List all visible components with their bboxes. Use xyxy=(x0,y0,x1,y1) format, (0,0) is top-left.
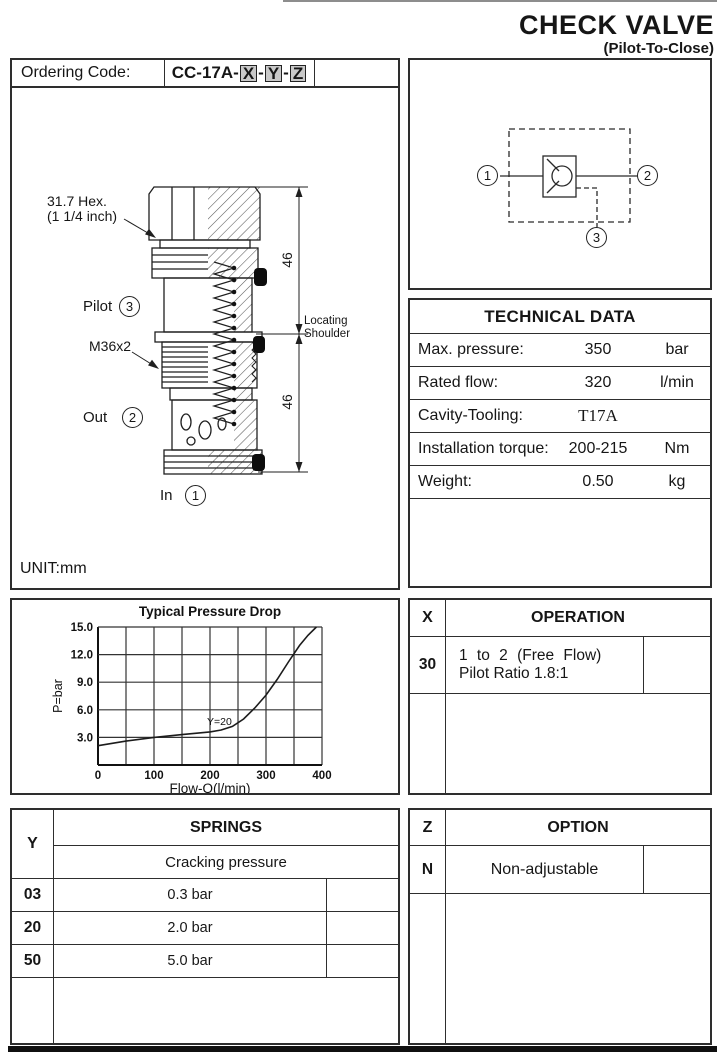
page-subtitle: (Pilot-To-Close) xyxy=(603,40,714,57)
operation-filler-code-col xyxy=(410,694,446,793)
pilot-label: Pilot xyxy=(83,298,112,315)
ordering-code-value: CC-17A-X-Y-Z xyxy=(165,60,315,86)
option-row-empty xyxy=(644,846,710,894)
technical-data-title: TECHNICAL DATA xyxy=(410,300,710,334)
in-label: In xyxy=(160,487,173,504)
springs-table: Y SPRINGS Cracking pressure 03 0.3 bar 2… xyxy=(10,808,400,1045)
spring-row-code: 20 xyxy=(12,912,54,945)
option-code-header: Z xyxy=(410,810,446,846)
operation-row-code: 30 xyxy=(410,637,446,694)
springs-filler xyxy=(54,978,398,1043)
datasheet-page: CHECK VALVE (Pilot-To-Close) Ordering Co… xyxy=(0,0,717,1054)
spring-row-value: 2.0 bar xyxy=(54,912,326,945)
option-row-value: Non-adjustable xyxy=(446,846,644,894)
section-hatching xyxy=(208,187,262,474)
option-title: OPTION xyxy=(446,810,710,846)
operation-title: OPERATION xyxy=(446,600,710,637)
y-tick-label: 3.0 xyxy=(77,732,93,744)
ordering-code-prefix: CC-17A- xyxy=(172,63,239,83)
tech-label: Rated flow: xyxy=(410,374,552,392)
tech-value: 320 xyxy=(552,374,644,392)
tech-value: T17A xyxy=(552,406,644,426)
unit-label: UNIT:mm xyxy=(20,560,87,578)
springs-code-header: Y xyxy=(12,810,54,879)
tech-unit: kg xyxy=(644,473,710,491)
ordering-empty-cell xyxy=(315,60,398,86)
ordering-code-label: Ordering Code: xyxy=(12,60,165,86)
springs-subtitle: Cracking pressure xyxy=(54,846,398,879)
tech-label: Installation torque: xyxy=(410,440,552,458)
pressure-drop-chart-panel: 3.06.09.012.015.00100200300400Typical Pr… xyxy=(10,598,400,795)
table-row: Installation torque: 200-215 Nm xyxy=(410,433,710,466)
y-tick-label: 9.0 xyxy=(77,677,93,689)
ordering-code-table: Ordering Code: CC-17A-X-Y-Z xyxy=(10,58,400,88)
x-tick-label: 0 xyxy=(95,770,101,782)
option-table: Z OPTION N Non-adjustable xyxy=(408,808,712,1045)
tech-unit: Nm xyxy=(644,440,710,458)
spring-row-empty xyxy=(326,879,398,912)
pressure-drop-chart: 3.06.09.012.015.00100200300400Typical Pr… xyxy=(12,600,398,793)
ordering-code-x: X xyxy=(240,65,257,82)
table-row: Cavity-Tooling: T17A xyxy=(410,400,710,433)
ordering-sep2: - xyxy=(283,63,289,83)
x-tick-label: 300 xyxy=(256,770,275,782)
curve-annotation: Y=20 xyxy=(207,716,232,728)
thread-label: M36x2 xyxy=(89,338,131,354)
locating-shoulder-label-line2: Shoulder xyxy=(304,328,350,340)
ordering-code-z: Z xyxy=(290,65,306,82)
dimension-46-bottom: 46 xyxy=(279,389,295,415)
x-tick-label: 400 xyxy=(312,770,331,782)
in-port-number: 1 xyxy=(185,485,206,506)
tech-label: Cavity-Tooling: xyxy=(410,407,552,425)
x-tick-label: 100 xyxy=(144,770,163,782)
tech-unit: bar xyxy=(644,341,710,359)
tech-value: 200-215 xyxy=(552,440,644,458)
chart-title: Typical Pressure Drop xyxy=(139,604,281,619)
spring-row-code: 50 xyxy=(12,945,54,978)
option-filler-code-col xyxy=(410,894,446,1043)
spring-row-value: 0.3 bar xyxy=(54,879,326,912)
option-row-code: N xyxy=(410,846,446,894)
symbol-port-1: 1 xyxy=(477,165,498,186)
y-tick-label: 15.0 xyxy=(71,622,93,634)
operation-row-description: 1 to 2 (Free Flow) Pilot Ratio 1.8:1 xyxy=(446,637,644,694)
spring-row-code: 03 xyxy=(12,879,54,912)
hex-size-label-line2: (1 1/4 inch) xyxy=(47,208,117,224)
out-port-number: 2 xyxy=(122,407,143,428)
tech-value: 350 xyxy=(552,341,644,359)
tech-label: Max. pressure: xyxy=(410,341,552,359)
operation-filler xyxy=(446,694,710,793)
y-tick-label: 12.0 xyxy=(71,650,93,662)
tech-unit: l/min xyxy=(644,374,710,392)
operation-line2: Pilot Ratio 1.8:1 xyxy=(459,665,568,683)
out-label: Out xyxy=(83,409,107,426)
top-rule xyxy=(283,0,717,2)
pilot-port-number: 3 xyxy=(119,296,140,317)
springs-title: SPRINGS xyxy=(54,810,398,846)
hydraulic-symbol-panel: 1 2 3 xyxy=(408,58,712,290)
operation-empty-cell xyxy=(644,637,710,694)
spring-row-value: 5.0 bar xyxy=(54,945,326,978)
symbol-port-3: 3 xyxy=(586,227,607,248)
spring-section xyxy=(214,262,236,426)
tech-value: 0.50 xyxy=(552,473,644,491)
table-row: Rated flow: 320 l/min xyxy=(410,367,710,400)
curve-Y=20 xyxy=(98,627,316,746)
operation-table: X OPERATION 30 1 to 2 (Free Flow) Pilot … xyxy=(408,598,712,795)
hex-size-label-line1: 31.7 Hex. xyxy=(47,193,107,209)
locating-shoulder-label-line1: Locating xyxy=(304,315,347,327)
check-valve-symbol xyxy=(410,60,710,288)
valve-drawing-panel: 31.7 Hex. (1 1/4 inch) Pilot 3 M36x2 Out… xyxy=(10,86,400,590)
operation-code-header: X xyxy=(410,600,446,637)
table-row: Weight: 0.50 kg xyxy=(410,466,710,499)
bottom-rule xyxy=(8,1046,717,1052)
page-title: CHECK VALVE xyxy=(519,10,714,41)
option-filler xyxy=(446,894,710,1043)
symbol-port-2: 2 xyxy=(637,165,658,186)
chart-ylabel: P=bar xyxy=(51,679,65,713)
spring-row-empty xyxy=(326,945,398,978)
ordering-sep1: - xyxy=(258,63,264,83)
technical-data-table: TECHNICAL DATA Max. pressure: 350 bar Ra… xyxy=(408,298,712,588)
chart-xlabel: Flow-Q(l/min) xyxy=(170,781,251,793)
y-tick-label: 6.0 xyxy=(77,705,93,717)
ordering-code-y: Y xyxy=(265,65,282,82)
dimension-46-top: 46 xyxy=(279,247,295,273)
springs-filler-code-col xyxy=(12,978,54,1043)
operation-line1: 1 to 2 (Free Flow) xyxy=(459,647,601,665)
tech-label: Weight: xyxy=(410,473,552,491)
spring-row-empty xyxy=(326,912,398,945)
table-row: Max. pressure: 350 bar xyxy=(410,334,710,367)
